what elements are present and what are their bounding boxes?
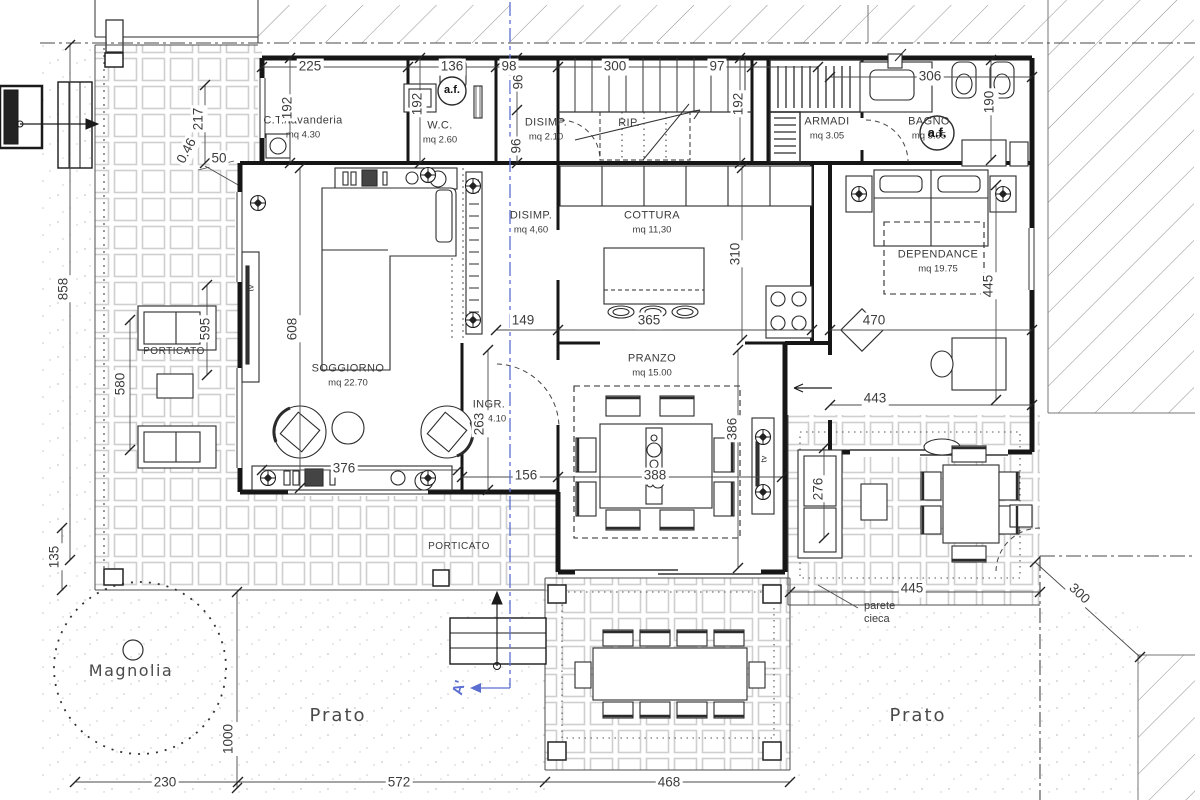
dim-595: 595 bbox=[198, 316, 215, 343]
room-label-armadi: ARMADImq 3.05 bbox=[804, 116, 849, 143]
dim-306: 306 bbox=[917, 69, 944, 86]
dim-580: 580 bbox=[113, 371, 130, 398]
dim-276: 276 bbox=[811, 476, 828, 503]
tv-label-soggiorno: tv bbox=[246, 285, 257, 292]
label-parete-cieca: parete cieca bbox=[864, 600, 912, 626]
af-label-bagno: a.f. bbox=[928, 125, 947, 141]
room-label-soggiorno: SOGGIORNOmq 22.70 bbox=[312, 363, 385, 390]
label-porticato-bottom: PORTICATO bbox=[428, 541, 490, 554]
dim-388: 388 bbox=[642, 468, 669, 485]
dim-310: 310 bbox=[728, 241, 745, 268]
dim-97: 97 bbox=[707, 59, 726, 76]
dim-149: 149 bbox=[510, 313, 537, 330]
dim-135: 135 bbox=[47, 544, 64, 571]
room-label-disimp-2: DISIMP.mq 4,60 bbox=[510, 210, 552, 237]
dim-230: 230 bbox=[152, 775, 179, 792]
dim-608: 608 bbox=[285, 316, 302, 343]
dim-190: 190 bbox=[982, 89, 999, 116]
room-label-dependance: DEPENDANCEmq 19.75 bbox=[898, 249, 978, 276]
label-prato-left: Prato bbox=[309, 705, 366, 728]
room-label-disimp-1: DISIMP.mq 2.10 bbox=[525, 117, 567, 144]
dim-192-stairs: 192 bbox=[731, 91, 748, 118]
dim-572: 572 bbox=[386, 775, 413, 792]
floor-plan-page: C.T./lavanderiamq 4.30 W.C.mq 2.60 DISIM… bbox=[0, 0, 1200, 800]
dim-192-ct: 192 bbox=[280, 95, 297, 122]
dim-470: 470 bbox=[861, 313, 888, 330]
room-label-rip: RIP. bbox=[618, 117, 640, 131]
af-label-wc: a.f. bbox=[444, 84, 460, 98]
dim-386: 386 bbox=[725, 416, 742, 443]
wardrobe bbox=[770, 60, 862, 162]
room-label-wc: W.C.mq 2.60 bbox=[423, 120, 457, 147]
dim-156: 156 bbox=[513, 468, 540, 485]
dim-300-stairs: 300 bbox=[602, 59, 629, 76]
room-label-pranzo: PRANZOmq 15.00 bbox=[628, 353, 676, 380]
outdoor-dining-set bbox=[575, 630, 765, 718]
dim-136: 136 bbox=[439, 59, 466, 76]
dim-225: 225 bbox=[297, 59, 324, 76]
livingroom-furniture bbox=[242, 168, 482, 490]
dim-468: 468 bbox=[656, 775, 683, 792]
dim-217: 217 bbox=[191, 106, 208, 133]
dim-263: 263 bbox=[472, 411, 489, 438]
dining-furniture bbox=[574, 386, 774, 538]
bathroom-fixtures bbox=[860, 49, 1028, 166]
dim-50: 50 bbox=[209, 151, 228, 168]
floor-plan-drawing bbox=[0, 0, 1200, 800]
dim-365: 365 bbox=[636, 313, 663, 330]
label-porticato-left: PORTICATO bbox=[143, 346, 205, 359]
dim-96-a: 96 bbox=[511, 72, 528, 91]
dim-858: 858 bbox=[56, 276, 73, 303]
label-prato-right: Prato bbox=[889, 705, 946, 728]
room-label-ct-lavanderia: C.T./lavanderiamq 4.30 bbox=[263, 115, 342, 142]
dim-192-wc: 192 bbox=[410, 91, 427, 118]
dim-443: 443 bbox=[862, 391, 889, 408]
dim-445-dependance: 445 bbox=[981, 273, 998, 300]
kitchen-furniture bbox=[560, 166, 812, 338]
dim-1000: 1000 bbox=[221, 722, 238, 756]
label-magnolia: Magnolia bbox=[89, 661, 173, 681]
dim-376: 376 bbox=[331, 461, 358, 478]
room-label-cottura: COTTURAmq 11,30 bbox=[624, 210, 680, 237]
dim-445-patio: 445 bbox=[899, 581, 926, 598]
tv-label-pranzo: tv bbox=[759, 456, 770, 463]
dim-96-b: 96 bbox=[509, 136, 526, 155]
